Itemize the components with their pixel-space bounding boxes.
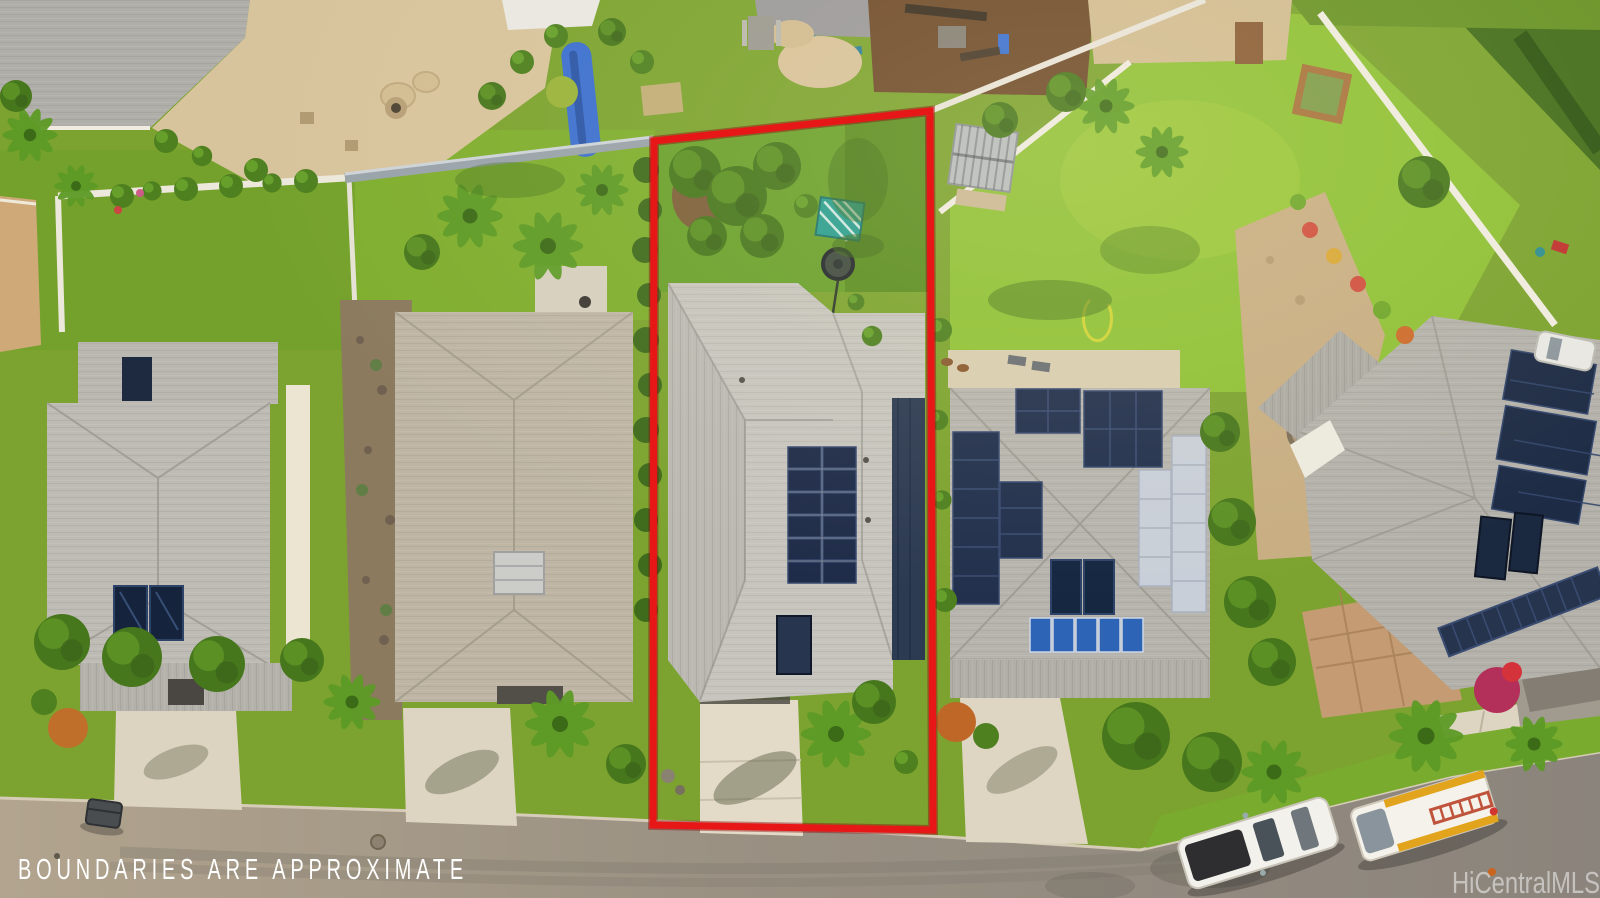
aerial-photo: BOUNDARIES ARE APPROXIMATE HiCentralMLS bbox=[0, 0, 1600, 898]
disclaimer-text: BOUNDARIES ARE APPROXIMATE bbox=[18, 854, 468, 886]
sunlight-overlay bbox=[0, 0, 1600, 898]
watermark-text: HiCentralMLS bbox=[1452, 865, 1600, 898]
